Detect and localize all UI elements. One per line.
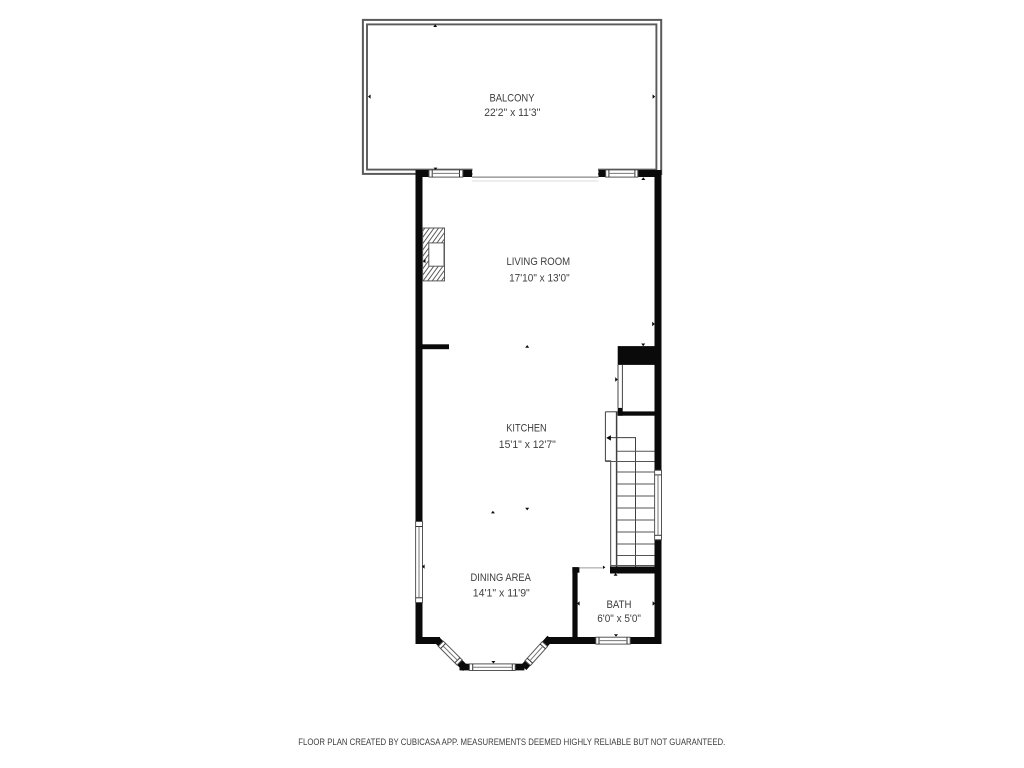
svg-text:14'1" x 11'9": 14'1" x 11'9": [473, 587, 530, 599]
svg-text:22'2" x 11'3": 22'2" x 11'3": [484, 107, 540, 119]
svg-text:LIVING ROOM: LIVING ROOM: [506, 256, 570, 268]
svg-text:17'10" x 13'0": 17'10" x 13'0": [509, 272, 570, 284]
svg-text:6'0" x 5'0": 6'0" x 5'0": [597, 613, 641, 625]
svg-text:KITCHEN: KITCHEN: [506, 423, 546, 435]
svg-text:DINING AREA: DINING AREA: [471, 572, 532, 584]
svg-text:15'1" x 12'7": 15'1" x 12'7": [499, 439, 556, 451]
svg-text:BATH: BATH: [607, 599, 632, 611]
svg-text:FLOOR PLAN CREATED BY CUBICASA: FLOOR PLAN CREATED BY CUBICASA APP. MEAS…: [298, 737, 725, 747]
svg-text:BALCONY: BALCONY: [490, 93, 535, 105]
